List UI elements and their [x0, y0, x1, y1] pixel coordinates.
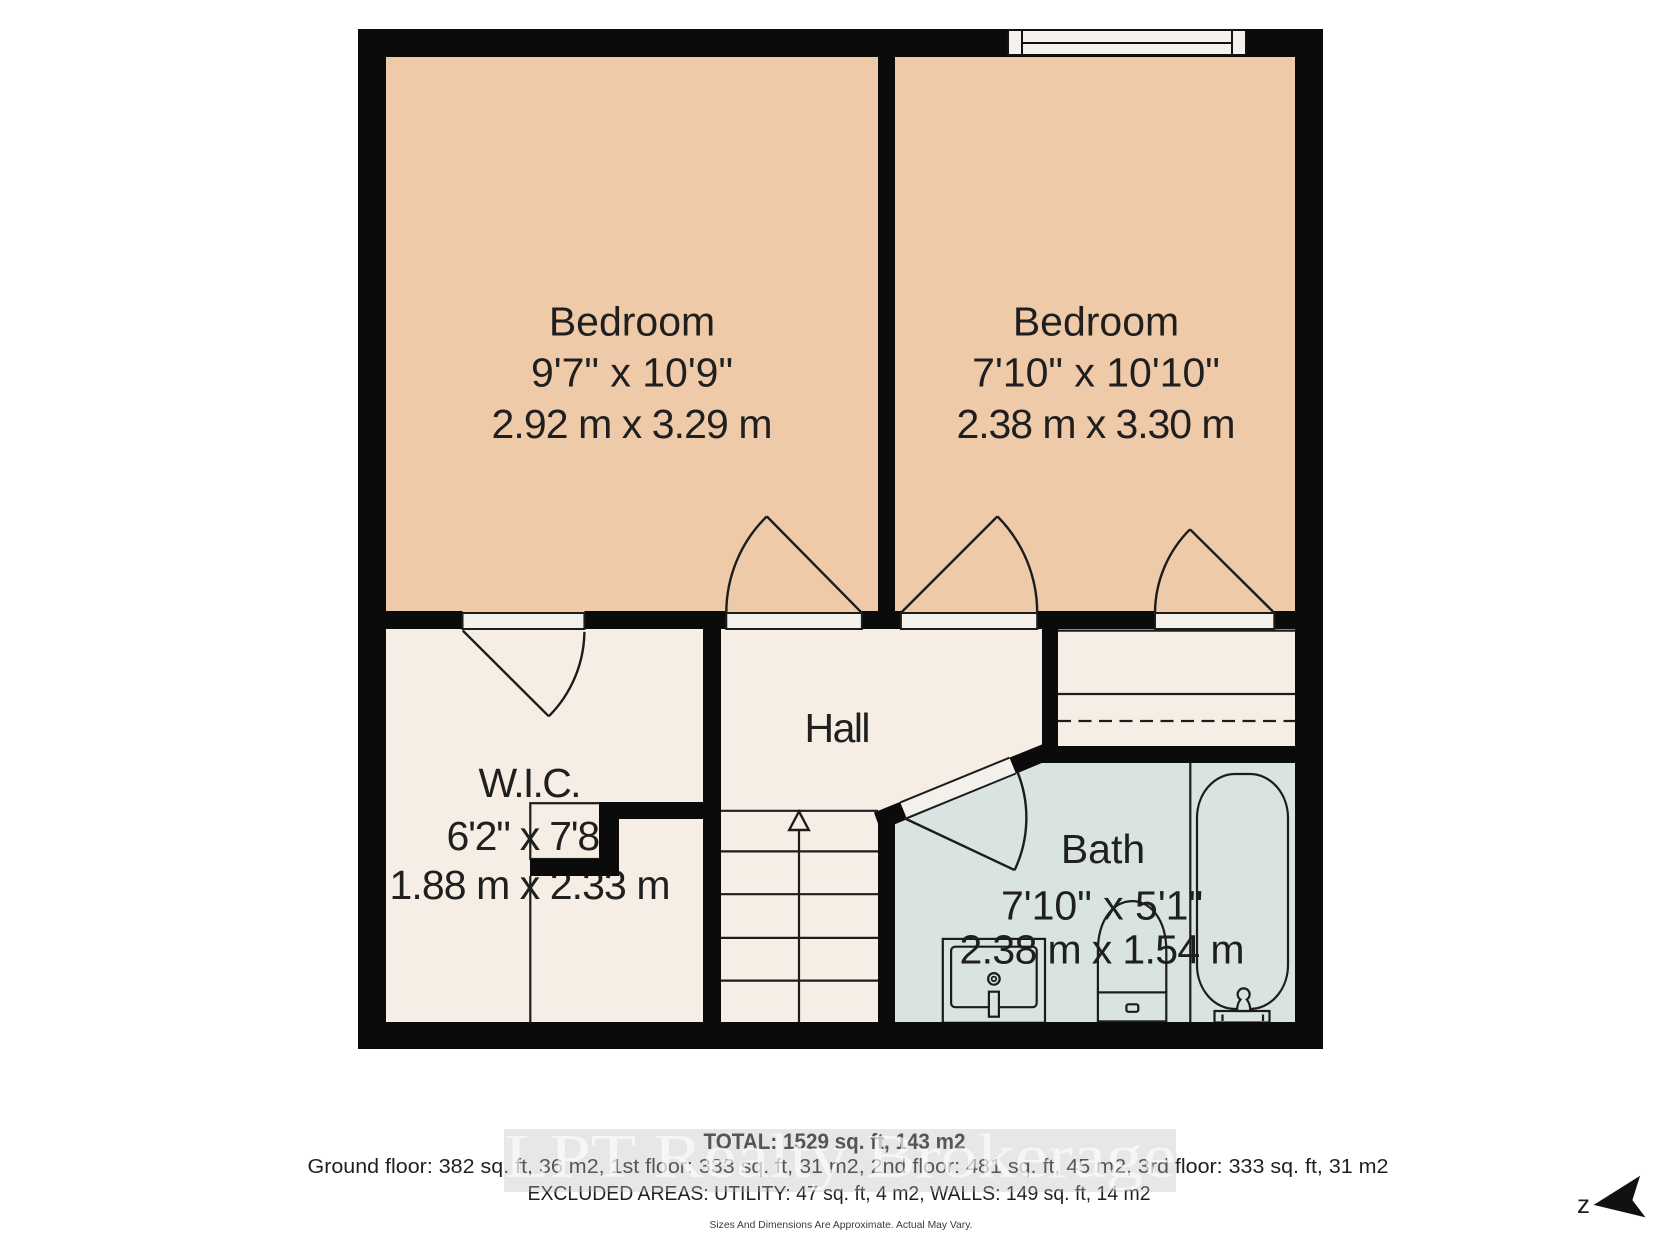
svg-text:LPT Realty Brokerage: LPT Realty Brokerage — [504, 1123, 1176, 1191]
svg-text:7'10" x 5'1": 7'10" x 5'1" — [1001, 883, 1203, 929]
svg-text:Bedroom: Bedroom — [549, 299, 715, 345]
svg-text:Bath: Bath — [1061, 826, 1145, 872]
svg-text:6'2" x 7'8": 6'2" x 7'8" — [447, 813, 614, 859]
svg-text:9'7" x 10'9": 9'7" x 10'9" — [531, 350, 733, 396]
svg-text:2.38 m x 1.54 m: 2.38 m x 1.54 m — [960, 927, 1245, 973]
svg-text:Sizes And Dimensions Are Appro: Sizes And Dimensions Are Approximate. Ac… — [710, 1219, 973, 1231]
svg-text:Hall: Hall — [805, 705, 871, 751]
svg-text:z: z — [1577, 1189, 1590, 1219]
svg-text:Bedroom: Bedroom — [1013, 299, 1179, 345]
svg-text:7'10" x 10'10": 7'10" x 10'10" — [972, 350, 1220, 396]
svg-text:W.I.C.: W.I.C. — [479, 760, 582, 806]
svg-text:2.92 m x 3.29 m: 2.92 m x 3.29 m — [492, 401, 773, 447]
svg-text:2.38 m x 3.30 m: 2.38 m x 3.30 m — [957, 401, 1236, 447]
